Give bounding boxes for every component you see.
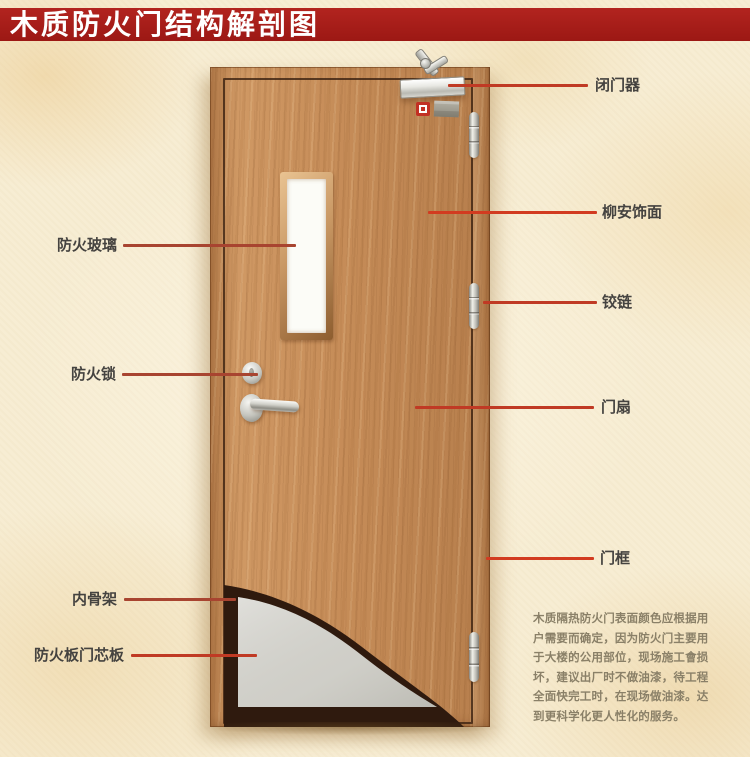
label-fire-lock: 防火锁 — [0, 366, 116, 383]
hinge-bottom — [469, 632, 479, 682]
leader-hinge — [483, 301, 597, 304]
product-description: 木质隔热防火门表面颜色应根据用户需要而确定，因为防火门主要用于大楼的公用部位，现… — [533, 610, 720, 728]
label-fire-board-core: 防火板门芯板 — [0, 647, 124, 664]
diagram-page: 木质防火门结构解剖图 — [0, 0, 750, 757]
label-door-frame: 门框 — [600, 550, 630, 567]
hinge-middle — [469, 283, 479, 329]
door-closer-joint — [420, 58, 431, 69]
label-door-closer: 闭门器 — [595, 77, 640, 94]
fire-glass-pane — [287, 179, 326, 333]
leader-door-frame — [486, 557, 594, 560]
door-closer-body — [400, 76, 466, 98]
label-hinge: 铰链 — [602, 294, 632, 311]
door-floor-shadow — [204, 722, 500, 735]
leader-door-closer — [448, 84, 588, 87]
leader-fire-glass — [123, 244, 296, 247]
alarm-indicator — [416, 102, 430, 116]
label-lauan-veneer: 柳安饰面 — [602, 204, 662, 221]
leader-inner-frame — [124, 598, 236, 601]
hinge-top — [469, 112, 479, 158]
glass-window-frame — [280, 172, 333, 340]
label-inner-frame: 内骨架 — [0, 591, 117, 608]
label-fire-glass: 防火玻璃 — [0, 237, 117, 254]
leader-fire-board-core — [131, 654, 257, 657]
leader-door-leaf — [415, 406, 594, 409]
cutaway-section-graphic — [210, 575, 490, 727]
page-title: 木质防火门结构解剖图 — [0, 8, 750, 41]
leader-lauan-veneer — [428, 211, 597, 214]
label-plate — [434, 101, 460, 118]
core-shading — [238, 597, 437, 707]
label-door-leaf: 门扇 — [601, 399, 631, 416]
leader-fire-lock — [122, 373, 258, 376]
